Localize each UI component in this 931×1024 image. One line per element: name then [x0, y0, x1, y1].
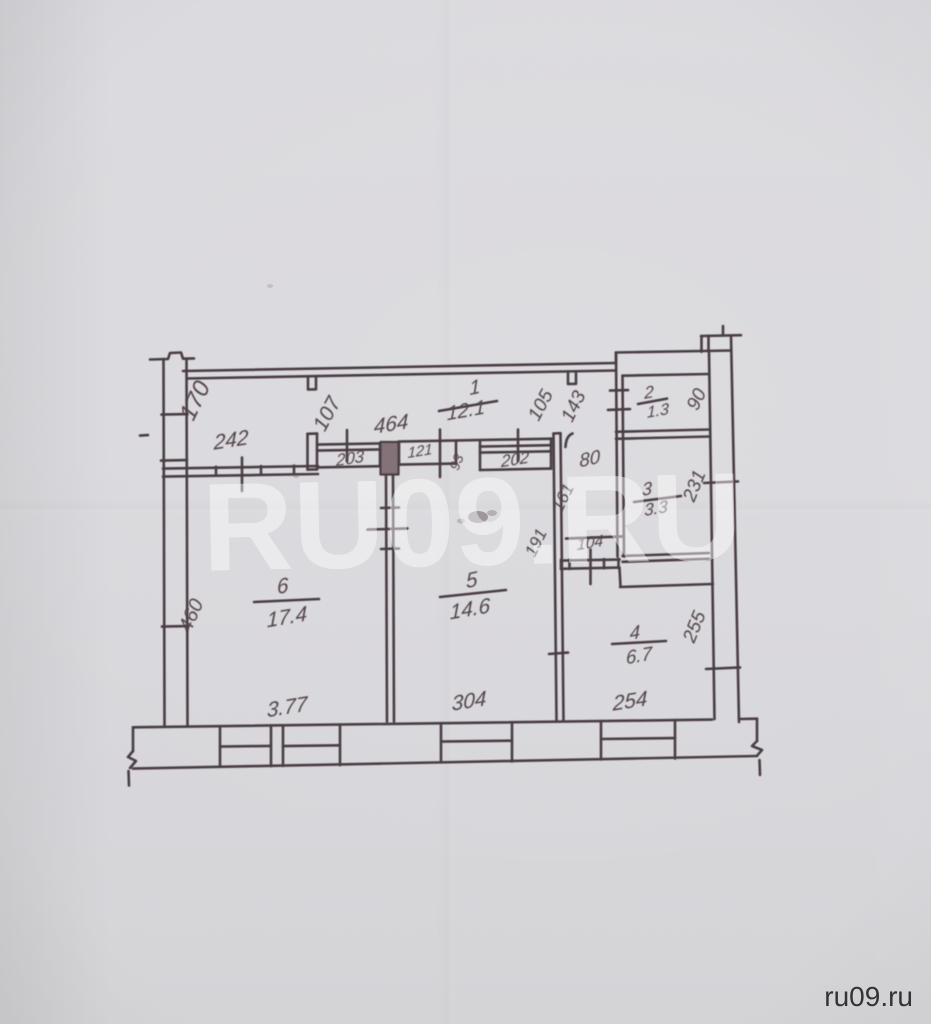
svg-text:1.3: 1.3 [647, 400, 669, 422]
svg-text:RU09.RU: RU09.RU [201, 447, 744, 597]
svg-text:1: 1 [469, 376, 481, 400]
svg-text:2: 2 [643, 381, 654, 403]
svg-text:ru09.ru: ru09.ru [824, 981, 913, 1012]
svg-text:4: 4 [630, 622, 640, 645]
